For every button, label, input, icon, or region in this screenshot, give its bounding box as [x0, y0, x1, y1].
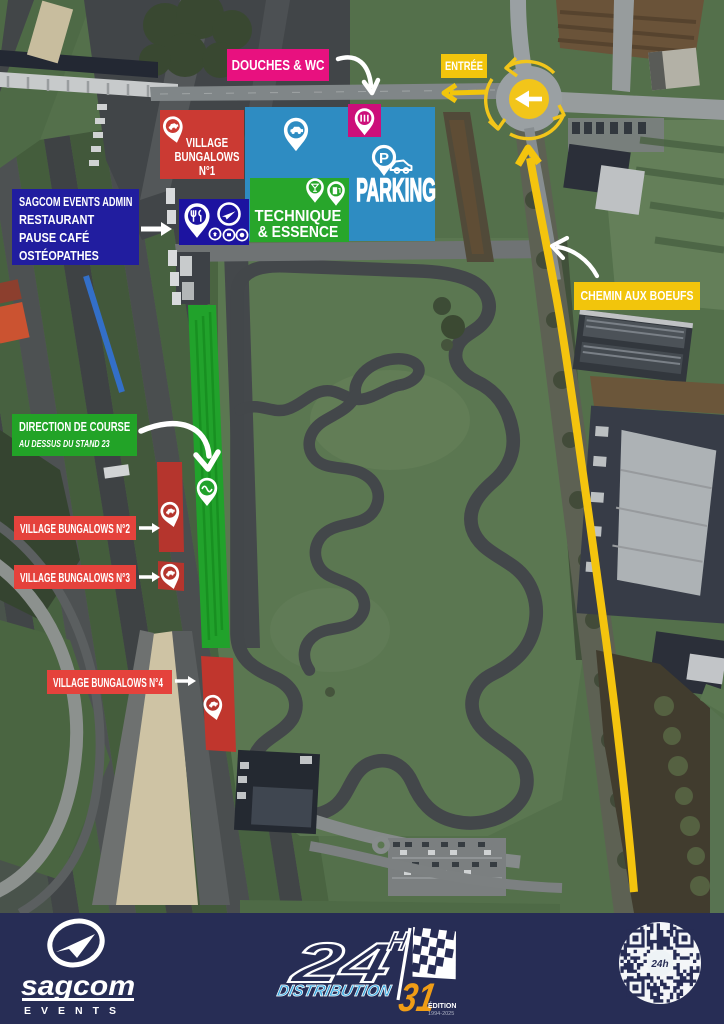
svg-text:ÉDITION: ÉDITION: [428, 1001, 456, 1010]
svg-text:BUNGALOWS: BUNGALOWS: [175, 151, 240, 165]
svg-text:DOUCHES & WC: DOUCHES & WC: [232, 57, 325, 74]
svg-text:RESTAURANT: RESTAURANT: [19, 212, 95, 227]
svg-text:DIRECTION DE COURSE: DIRECTION DE COURSE: [19, 421, 131, 435]
svg-text:SAGCOM EVENTS ADMIN: SAGCOM EVENTS ADMIN: [19, 196, 132, 210]
svg-text:ENTRÉE: ENTRÉE: [445, 59, 483, 73]
svg-text:OSTÉOPATHES: OSTÉOPATHES: [19, 247, 99, 263]
svg-text:sagcom: sagcom: [21, 971, 135, 1002]
svg-text:VILLAGE: VILLAGE: [186, 137, 229, 151]
svg-text:CHEMIN AUX BOEUFS: CHEMIN AUX BOEUFS: [581, 288, 694, 303]
svg-text:VILLAGE BUNGALOWS N°3: VILLAGE BUNGALOWS N°3: [20, 571, 130, 585]
svg-text:VILLAGE BUNGALOWS N°4: VILLAGE BUNGALOWS N°4: [53, 676, 163, 690]
svg-text:PARKING: PARKING: [356, 174, 436, 209]
svg-text:N°1: N°1: [199, 165, 216, 179]
svg-text:& ESSENCE: & ESSENCE: [258, 224, 339, 241]
svg-text:PAUSE CAFÉ: PAUSE CAFÉ: [19, 229, 89, 245]
svg-text:DISTRIBUTION: DISTRIBUTION: [275, 982, 393, 1000]
svg-text:1994-2025: 1994-2025: [428, 1011, 454, 1017]
svg-text:TECHNIQUE: TECHNIQUE: [255, 208, 342, 225]
svg-text:EVENTS: EVENTS: [24, 1005, 126, 1017]
svg-text:VILLAGE BUNGALOWS N°2: VILLAGE BUNGALOWS N°2: [20, 522, 130, 536]
svg-text:P: P: [379, 150, 389, 167]
svg-text:24h: 24h: [650, 959, 668, 970]
svg-text:AU DESSUS DU STAND 23: AU DESSUS DU STAND 23: [18, 438, 110, 449]
